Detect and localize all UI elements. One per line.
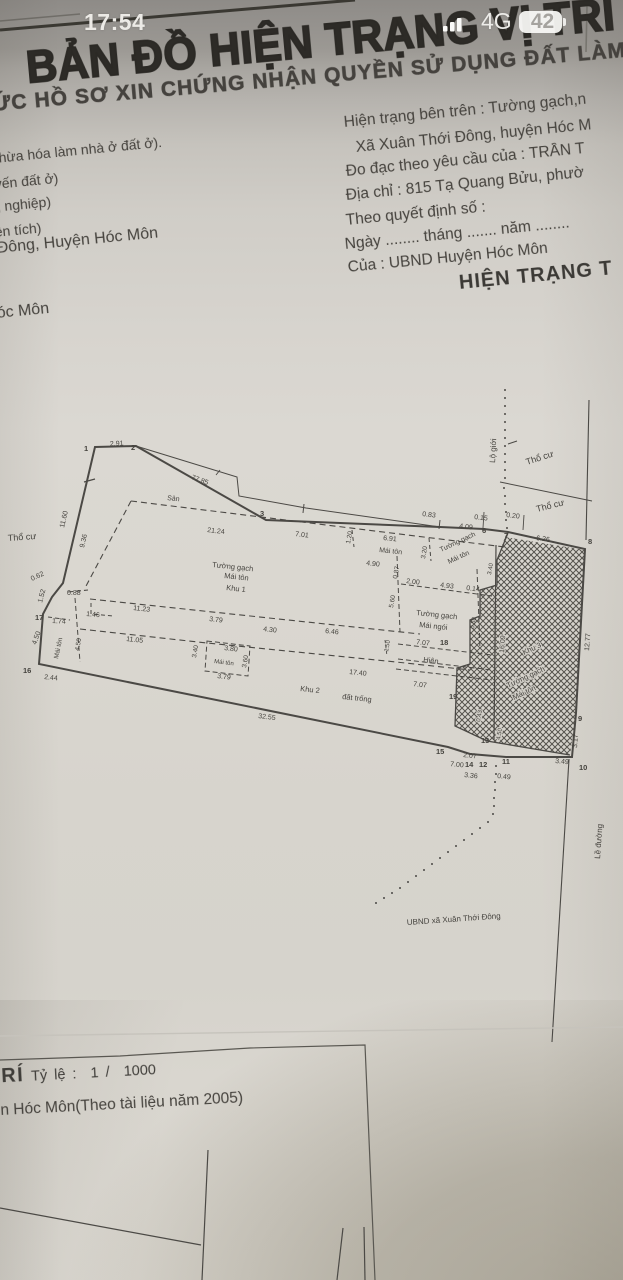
svg-text:Lộ giới: Lộ giới: [488, 438, 498, 463]
svg-text:Thổ cư: Thổ cư: [535, 497, 565, 514]
svg-text:3.79: 3.79: [217, 673, 231, 682]
svg-text:0.87: 0.87: [392, 565, 401, 579]
svg-text:7.01: 7.01: [295, 531, 309, 540]
svg-text:0.62: 0.62: [30, 571, 45, 583]
svg-text:14: 14: [465, 760, 474, 769]
svg-text:7.00: 7.00: [450, 761, 464, 769]
svg-text:Khu 1: Khu 1: [226, 583, 246, 594]
svg-text:Hiên: Hiên: [423, 655, 439, 666]
svg-text:4.30: 4.30: [263, 626, 277, 635]
svg-text:11.60: 11.60: [59, 510, 70, 528]
svg-text:16.09: 16.09: [499, 635, 507, 653]
svg-text:đất trống: đất trống: [342, 692, 372, 704]
svg-text:3.80: 3.80: [224, 645, 238, 654]
svg-text:7: 7: [504, 531, 508, 540]
svg-text:9: 9: [578, 714, 582, 723]
svg-text:3.49: 3.49: [555, 758, 569, 766]
svg-text:Thổ cư: Thổ cư: [7, 531, 36, 543]
svg-text:1.74: 1.74: [52, 618, 66, 626]
svg-text:12.77: 12.77: [584, 633, 592, 651]
svg-text:Mái tôn: Mái tôn: [224, 571, 249, 583]
svg-text:4.09: 4.09: [459, 523, 473, 532]
svg-text:18: 18: [440, 638, 448, 647]
svg-text:0.88: 0.88: [67, 590, 81, 597]
svg-text:16: 16: [23, 666, 31, 675]
svg-text:3.40: 3.40: [191, 644, 200, 658]
svg-text:UBND xã Xuân Thới Đông: UBND xã Xuân Thới Đông: [407, 911, 501, 927]
svg-text:4.90: 4.90: [366, 560, 380, 569]
svg-text:Lề đường: Lề đường: [593, 824, 604, 860]
svg-text:17.40: 17.40: [349, 669, 367, 678]
svg-text:3.40: 3.40: [487, 562, 495, 575]
svg-text:Mái tôn: Mái tôn: [379, 547, 403, 556]
svg-text:2.44: 2.44: [44, 674, 58, 682]
svg-text:1.52: 1.52: [37, 588, 47, 603]
svg-text:13: 13: [481, 736, 489, 745]
svg-text:2.00: 2.00: [406, 578, 420, 587]
svg-text:21.24: 21.24: [207, 527, 225, 536]
svg-text:10: 10: [579, 763, 587, 772]
svg-text:8: 8: [588, 537, 592, 546]
svg-text:0.15: 0.15: [474, 514, 488, 523]
svg-text:Mái ngói: Mái ngói: [419, 620, 448, 632]
svg-text:Khu 2: Khu 2: [300, 684, 320, 695]
svg-text:Mái tôn: Mái tôn: [53, 637, 64, 660]
svg-text:0.49: 0.49: [497, 773, 511, 781]
svg-text:19: 19: [449, 692, 457, 701]
svg-text:Mái tôn: Mái tôn: [447, 550, 471, 566]
svg-text:6.91: 6.91: [383, 535, 397, 543]
svg-text:6.46: 6.46: [325, 628, 339, 636]
svg-text:3.17: 3.17: [572, 734, 580, 748]
svg-text:77.85: 77.85: [190, 474, 209, 487]
svg-text:3.79: 3.79: [209, 616, 223, 625]
svg-text:12: 12: [479, 760, 487, 769]
svg-text:1: 1: [84, 444, 88, 453]
svg-text:1.20: 1.20: [345, 530, 354, 544]
svg-text:1.46: 1.46: [86, 611, 100, 619]
svg-text:2.07: 2.07: [463, 752, 477, 760]
svg-text:7.07: 7.07: [413, 681, 427, 690]
svg-text:3.60: 3.60: [241, 654, 250, 668]
svg-text:Thổ cư: Thổ cư: [525, 449, 555, 467]
svg-text:11: 11: [502, 757, 510, 766]
svg-text:15: 15: [436, 747, 444, 756]
svg-text:17: 17: [35, 613, 43, 622]
svg-text:0.20: 0.20: [506, 512, 520, 521]
svg-text:2.91: 2.91: [110, 440, 124, 448]
svg-text:4.50: 4.50: [74, 637, 83, 651]
svg-text:Mái tôn: Mái tôn: [214, 659, 234, 667]
svg-text:9.36: 9.36: [79, 533, 89, 548]
svg-text:32.55: 32.55: [258, 713, 276, 722]
svg-text:3.36: 3.36: [464, 772, 478, 780]
svg-text:11.05: 11.05: [126, 636, 144, 645]
svg-text:2: 2: [131, 443, 135, 452]
svg-text:6: 6: [482, 526, 486, 535]
svg-text:11.23: 11.23: [133, 605, 151, 614]
svg-text:3.20: 3.20: [420, 545, 429, 559]
svg-text:5.60: 5.60: [388, 594, 397, 608]
svg-text:0.83: 0.83: [422, 511, 436, 520]
svg-text:3: 3: [260, 509, 264, 518]
svg-text:Sân: Sân: [167, 495, 180, 503]
